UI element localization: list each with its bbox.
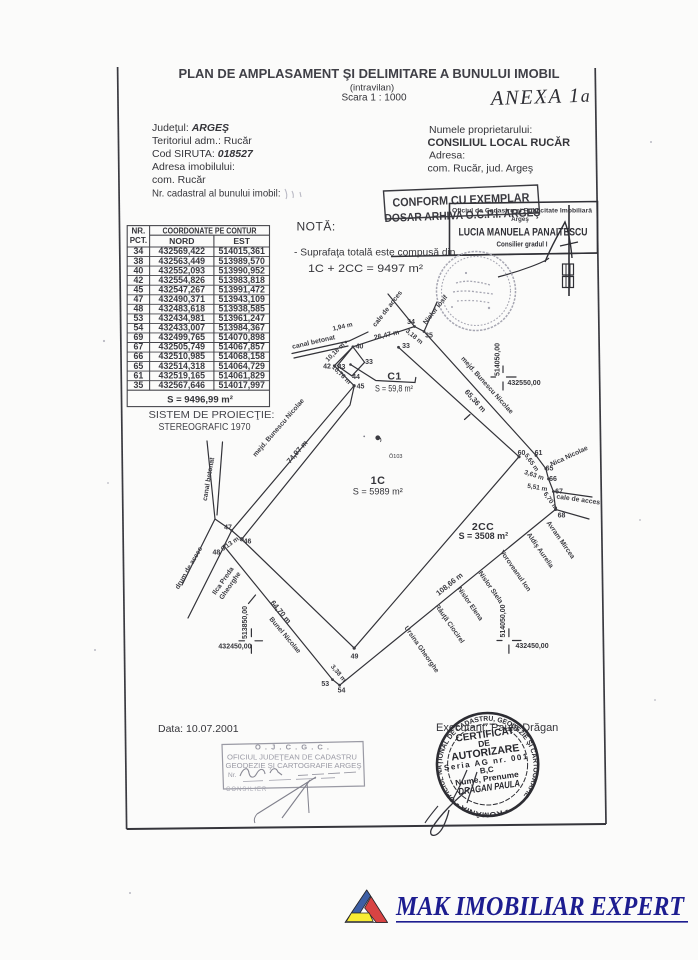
svg-text:Avram Mircea: Avram Mircea bbox=[545, 520, 576, 561]
svg-text:514070,898: 514070,898 bbox=[218, 332, 265, 342]
svg-text:66: 66 bbox=[549, 476, 557, 483]
svg-text:Nislor Elena: Nislor Elena bbox=[456, 586, 484, 622]
svg-text:42: 42 bbox=[323, 364, 331, 371]
svg-text:65: 65 bbox=[134, 361, 144, 371]
svg-text:49: 49 bbox=[351, 654, 359, 661]
svg-text:514050,00: 514050,00 bbox=[495, 343, 502, 376]
svg-text:45: 45 bbox=[134, 284, 144, 294]
svg-text:513990,952: 513990,952 bbox=[218, 265, 265, 275]
svg-text:513989,570: 513989,570 bbox=[218, 256, 265, 266]
svg-text:Data: 10.07.2001: Data: 10.07.2001 bbox=[158, 723, 239, 735]
svg-text:Nislor Iosif: Nislor Iosif bbox=[422, 294, 450, 327]
svg-text:432434,981: 432434,981 bbox=[159, 313, 206, 323]
svg-text:33: 33 bbox=[365, 359, 373, 366]
svg-text:432567,646: 432567,646 bbox=[159, 380, 206, 390]
svg-text:432505,749: 432505,749 bbox=[159, 342, 206, 352]
svg-text:513938,585: 513938,585 bbox=[218, 304, 265, 314]
svg-text:432483,618: 432483,618 bbox=[159, 304, 206, 314]
svg-text:Nislor Stela: Nislor Stela bbox=[477, 570, 504, 605]
svg-text:513961,247: 513961,247 bbox=[218, 313, 265, 323]
svg-text:MAK IMOBILIAR EXPERT: MAK IMOBILIAR EXPERT bbox=[395, 890, 685, 921]
svg-text:432433,007: 432433,007 bbox=[159, 323, 206, 333]
svg-text:cale de acces: cale de acces bbox=[372, 289, 405, 328]
svg-text:47: 47 bbox=[224, 525, 232, 532]
svg-text:com. Rucăr: com. Rucăr bbox=[152, 174, 206, 186]
svg-text:Nr.: Nr. bbox=[228, 772, 237, 779]
svg-text:Judeţul: ARGEŞ: Judeţul: ARGEŞ bbox=[152, 122, 229, 134]
svg-text:Răuţă Ciocirel: Răuţă Ciocirel bbox=[433, 603, 465, 645]
svg-text:SISTEM DE PROIECŢIE:: SISTEM DE PROIECŢIE: bbox=[149, 409, 275, 421]
svg-text:38: 38 bbox=[134, 256, 144, 266]
svg-text:514017,997: 514017,997 bbox=[218, 380, 265, 390]
svg-text:60: 60 bbox=[518, 450, 526, 457]
svg-text:26,47 m: 26,47 m bbox=[373, 329, 400, 342]
svg-text:514050,00: 514050,00 bbox=[500, 604, 507, 637]
svg-text:34: 34 bbox=[407, 319, 415, 326]
svg-text:42: 42 bbox=[134, 275, 144, 285]
svg-text:432550,00: 432550,00 bbox=[508, 380, 541, 387]
svg-text:33: 33 bbox=[402, 343, 410, 350]
svg-text:Aldiş Aurelia: Aldiş Aurelia bbox=[525, 532, 555, 570]
svg-text:Nr. cadastral al bunului imobi: Nr. cadastral al bunului imobil: bbox=[152, 188, 281, 200]
svg-text:Argeş: Argeş bbox=[511, 216, 529, 223]
svg-text:74,97 m: 74,97 m bbox=[285, 438, 310, 465]
svg-text:46: 46 bbox=[244, 539, 252, 546]
svg-text:S = 59,8 m²: S = 59,8 m² bbox=[375, 384, 413, 394]
svg-text:432554,826: 432554,826 bbox=[159, 275, 206, 285]
svg-text:432519,165: 432519,165 bbox=[159, 370, 206, 380]
svg-text:NR.: NR. bbox=[132, 227, 146, 236]
svg-text:canal betonat: canal betonat bbox=[202, 456, 217, 501]
svg-text:48: 48 bbox=[213, 550, 221, 557]
svg-text:Oficiul de Cadastru şi Publici: Oficiul de Cadastru şi Publicitate Imobi… bbox=[452, 208, 593, 215]
svg-text:O.J.C.G.C.: O.J.C.G.C. bbox=[255, 743, 329, 752]
svg-text:- Suprafaţa totală este compus: - Suprafaţa totală este compusă din bbox=[294, 248, 456, 259]
svg-text:45: 45 bbox=[357, 384, 365, 391]
svg-text:513850,00: 513850,00 bbox=[242, 606, 249, 639]
svg-text:513991,472: 513991,472 bbox=[218, 284, 265, 294]
svg-text:514068,158: 514068,158 bbox=[218, 351, 265, 361]
svg-text:432450,00: 432450,00 bbox=[218, 644, 251, 651]
svg-text:432569,422: 432569,422 bbox=[159, 246, 206, 256]
svg-text:S = 9496,99 m²: S = 9496,99 m² bbox=[167, 395, 233, 406]
svg-text:Adresa imobilului:: Adresa imobilului: bbox=[152, 161, 235, 173]
svg-text:PLAN DE AMPLASAMENT ŞI DELIMIT: PLAN DE AMPLASAMENT ŞI DELIMITARE A BUNU… bbox=[179, 66, 560, 81]
svg-text:53: 53 bbox=[134, 313, 144, 323]
svg-text:514064,729: 514064,729 bbox=[218, 361, 265, 371]
svg-text:ANEXA 1a: ANEXA 1a bbox=[488, 85, 591, 111]
svg-text:61: 61 bbox=[134, 370, 144, 380]
svg-text:40: 40 bbox=[134, 265, 144, 275]
svg-text:54: 54 bbox=[338, 688, 346, 695]
svg-text:S = 3508 m²: S = 3508 m² bbox=[459, 531, 509, 541]
svg-text:Nica Nicolae: Nica Nicolae bbox=[550, 445, 590, 469]
svg-text:C1: C1 bbox=[387, 371, 401, 383]
svg-text:432510,985: 432510,985 bbox=[159, 351, 206, 361]
svg-text:Scara 1 : 1000: Scara 1 : 1000 bbox=[341, 93, 406, 104]
svg-text:1C + 2CC = 9497 m²: 1C + 2CC = 9497 m² bbox=[308, 263, 423, 275]
svg-text:67: 67 bbox=[555, 489, 563, 496]
svg-text:68: 68 bbox=[558, 513, 566, 520]
svg-text:S = 5989 m²: S = 5989 m² bbox=[353, 487, 403, 497]
svg-text:432552,093: 432552,093 bbox=[159, 265, 206, 275]
svg-text:OFICIUL JUDEŢEAN DE CADASTRU: OFICIUL JUDEŢEAN DE CADASTRU bbox=[227, 755, 357, 762]
svg-text:PCT.: PCT. bbox=[130, 236, 147, 245]
svg-text:Ô103: Ô103 bbox=[389, 453, 402, 460]
svg-text:513943,109: 513943,109 bbox=[218, 294, 265, 304]
svg-text:1C: 1C bbox=[371, 475, 386, 487]
svg-text:66: 66 bbox=[134, 351, 144, 361]
svg-text:54: 54 bbox=[134, 323, 144, 333]
svg-text:44: 44 bbox=[352, 374, 360, 381]
svg-text:34: 34 bbox=[134, 246, 144, 256]
svg-text:drum de acces: drum de acces bbox=[174, 546, 204, 591]
svg-text:6,13 m: 6,13 m bbox=[220, 535, 241, 552]
svg-text:432514,318: 432514,318 bbox=[159, 361, 206, 371]
svg-text:COORDONATE PE CONTUR: COORDONATE PE CONTUR bbox=[163, 226, 257, 235]
svg-text:514015,361: 514015,361 bbox=[218, 246, 265, 256]
svg-text:65,36 m: 65,36 m bbox=[463, 388, 488, 415]
svg-text:40: 40 bbox=[356, 344, 364, 351]
svg-text:CONSILIUL LOCAL RUCĂR: CONSILIUL LOCAL RUCĂR bbox=[428, 136, 571, 149]
svg-text:com. Rucăr, jud. Argeş: com. Rucăr, jud. Argeş bbox=[428, 163, 534, 175]
svg-text:EST: EST bbox=[233, 236, 250, 246]
svg-text:514061,829: 514061,829 bbox=[218, 370, 265, 380]
svg-text:43: 43 bbox=[338, 364, 346, 371]
svg-text:Cod SIRUTA: 018527: Cod SIRUTA: 018527 bbox=[152, 148, 254, 160]
svg-text:513984,367: 513984,367 bbox=[218, 323, 265, 333]
svg-text:Consilier gradul I: Consilier gradul I bbox=[497, 242, 548, 249]
svg-text:Adresa:: Adresa: bbox=[429, 150, 465, 162]
svg-text:35: 35 bbox=[134, 380, 144, 390]
svg-text:53: 53 bbox=[321, 681, 329, 688]
svg-text:514067,857: 514067,857 bbox=[218, 342, 265, 352]
svg-text:47: 47 bbox=[134, 294, 144, 304]
svg-text:10,18 m: 10,18 m bbox=[325, 341, 347, 363]
svg-text:48: 48 bbox=[134, 304, 144, 314]
svg-text:69: 69 bbox=[134, 332, 144, 342]
svg-text:35: 35 bbox=[425, 333, 433, 340]
svg-text:513983,818: 513983,818 bbox=[218, 275, 265, 285]
svg-text:Numele proprietarului:: Numele proprietarului: bbox=[429, 124, 532, 136]
svg-text:432490,371: 432490,371 bbox=[159, 294, 206, 304]
svg-text:STEREOGRAFIC 1970: STEREOGRAFIC 1970 bbox=[159, 421, 251, 433]
svg-text:432547,267: 432547,267 bbox=[159, 284, 206, 294]
svg-text:3,63 m: 3,63 m bbox=[523, 469, 545, 482]
svg-text:432499,765: 432499,765 bbox=[159, 332, 206, 342]
svg-text:1,94 m: 1,94 m bbox=[332, 321, 354, 332]
svg-text:NOTĂ:: NOTĂ: bbox=[297, 219, 336, 234]
svg-text:NORD: NORD bbox=[169, 236, 194, 246]
svg-text:CONSILIER: CONSILIER bbox=[226, 787, 267, 793]
svg-text:61: 61 bbox=[535, 450, 543, 457]
svg-text:432450,00: 432450,00 bbox=[516, 643, 549, 650]
svg-text:65: 65 bbox=[546, 466, 554, 473]
svg-text:67: 67 bbox=[134, 342, 144, 352]
svg-text:Voroveanul Ion: Voroveanul Ion bbox=[498, 549, 532, 593]
svg-text:Ursina Gheorghe: Ursina Gheorghe bbox=[403, 625, 440, 674]
svg-text:Teritoriul adm.: Rucăr: Teritoriul adm.: Rucăr bbox=[152, 135, 252, 147]
svg-text:432563,449: 432563,449 bbox=[159, 256, 206, 266]
